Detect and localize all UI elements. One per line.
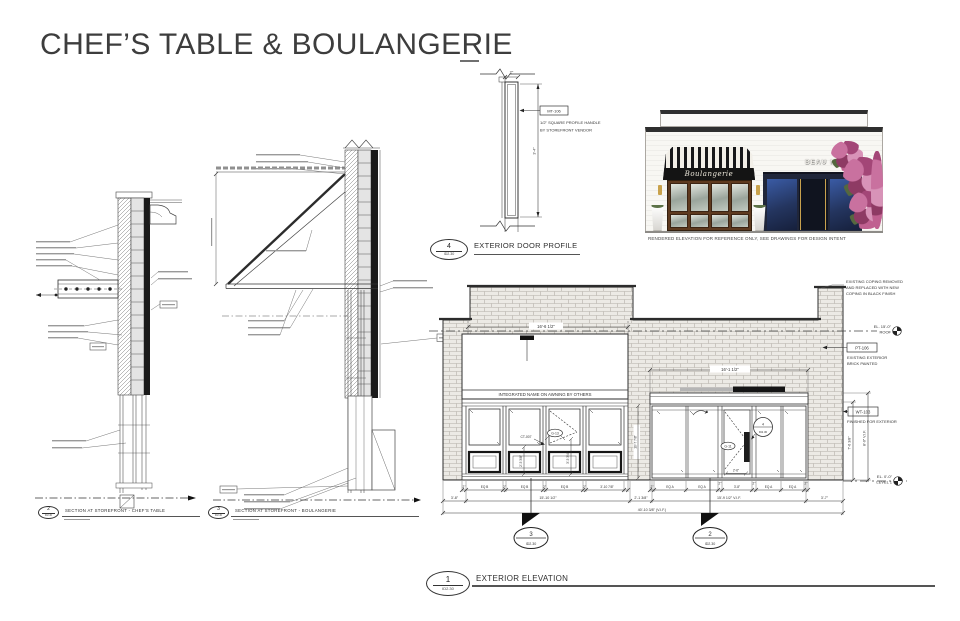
detail-number: 3: [212, 507, 226, 514]
note-line: BRICK PAINTED: [847, 361, 877, 366]
cut-ref-sheet: ID2.30: [526, 542, 537, 546]
dim-label: EQ A: [765, 485, 773, 489]
render-glass-left: [767, 179, 797, 230]
tag-label: MT-106: [547, 109, 561, 114]
dim-label: EQ B: [561, 485, 569, 489]
dim-label: 16'-1 1/2": [721, 367, 739, 372]
render-dark-door: [799, 179, 828, 230]
glass-tag: G-11: [724, 445, 731, 449]
bottom-dimension-strings: 2" EQ B 2" EQ B 2" EQ B 2" 3'-10 7/8" 2"…: [441, 481, 845, 515]
wt-tag: WT-103 FINISHED FOR EXTERIOR: [843, 407, 897, 424]
dim-label: 2": [753, 482, 756, 486]
dim-label: 15'-9 1/2" V.I.F.: [717, 496, 741, 500]
dim-label: 2": [805, 482, 808, 486]
cornice-profile: [150, 200, 182, 224]
dim-label: 16'-6 1/2": [537, 324, 555, 329]
scale-text-stub: [233, 519, 259, 520]
dim-label: EQ B: [481, 485, 489, 489]
detail-ref-number: 4: [762, 423, 764, 427]
detail-sheet: ID2.30: [215, 514, 222, 517]
dim-label: 2": [651, 485, 654, 489]
detail-ref-sheet: ID2.30: [759, 430, 768, 434]
drawing-title-label: EXTERIOR ELEVATION: [476, 574, 568, 583]
annotation-leaders: [36, 225, 192, 448]
door-edge-profile: [499, 77, 518, 232]
wall-assembly: [343, 140, 380, 398]
steel-beam: [36, 280, 122, 298]
wall-assembly: [116, 192, 152, 395]
level1-line: EL. 0'-0" LEVEL 1: [843, 474, 907, 485]
note-line: AND REPLACED WITH NEW: [846, 285, 899, 290]
awning-left-storefront: 16'-6 1/2" INTEGRATED NAME ON AWNING BY …: [462, 321, 630, 477]
exterior-elevation-title: 1 ID2.30 EXTERIOR ELEVATION: [426, 571, 568, 596]
dim-label: 2": [543, 485, 546, 489]
detail-number: 1: [433, 576, 463, 586]
awning-valance: Boulangerie: [663, 168, 755, 180]
page-title: CHEF’S TABLE & BOULANGERIE: [40, 28, 513, 62]
door-profile-title: 4 ID2.30 EXTERIOR DOOR PROFILE: [430, 239, 577, 260]
right-vertical-dimensions: 7'-6 3/8" 8'-0" V.I.F.: [843, 391, 871, 482]
render-caption: RENDERED ELEVATION FOR REFERENCE ONLY, S…: [648, 236, 846, 241]
roof-elevation-value: EL. 15'-0": [874, 324, 892, 329]
handle-note-1: 1/2" SQUARE PROFILE HANDLE: [540, 120, 601, 125]
section-boulangerie-drawing: [208, 138, 453, 523]
detail-bubble: 2 ID2.30: [38, 506, 59, 519]
dim-label: 3'-8": [451, 496, 459, 500]
dim-label: EQ B: [521, 485, 529, 489]
dim-label: 2'-6": [733, 469, 739, 473]
dim-label: 3'-10 7/8": [600, 485, 613, 489]
wall-sconce: [756, 185, 760, 195]
storefront-below: [116, 395, 152, 508]
dim-label: 40'-10 3/8" (V.I.F.): [638, 508, 666, 512]
door-gold-trim: [800, 179, 801, 230]
level1-elevation-label: LEVEL 1: [876, 480, 892, 485]
glass-tag: G-13: [551, 432, 559, 436]
drawing-title-label: SECTION AT STOREFRONT - BOULANGERIE: [235, 508, 336, 513]
wood-door: [670, 183, 688, 228]
dim-label: EQ A: [698, 485, 706, 489]
dim-label: EQ A: [789, 485, 797, 489]
note-line: COPING IN BLACK FINISH: [846, 291, 895, 296]
rendered-elevation: BEAU MONDE Boulangerie: [645, 95, 883, 237]
tag-label: WT-103: [856, 410, 871, 415]
bougainvillea: [871, 151, 883, 229]
dim-label: 10'-7 7/8": [634, 435, 638, 448]
note-line: EXISTING COPING REMOVED: [846, 279, 903, 284]
detail-number: 2: [42, 507, 56, 514]
detail-number: 4: [436, 243, 462, 252]
handle-tag: MT-106 1/2" SQUARE PROFILE HANDLE BY STO…: [520, 106, 601, 133]
dim-label: 7'-6 3/8": [848, 436, 852, 450]
note-line: EXISTING EXTERIOR: [847, 355, 887, 360]
dim-label: 3'-5 3/4": [566, 452, 570, 464]
dim-label: 3'-4": [533, 147, 537, 155]
cut-ref-sheet: ID2.30: [705, 542, 716, 546]
drawing-title-label: SECTION AT STOREFRONT - CHEF'S TABLE: [65, 508, 165, 513]
level1-elevation-value: EL. 0'-0": [877, 474, 893, 479]
annotation-leaders: [220, 154, 455, 509]
dim-label: 2": [503, 485, 506, 489]
detail-sheet: ID2.30: [442, 586, 454, 591]
tag-label: PT-106: [855, 346, 869, 351]
drawing-title-label: EXTERIOR DOOR PROFILE: [474, 241, 577, 250]
render-striped-awning: Boulangerie: [663, 147, 755, 180]
handle-note-2: BY STOREFRONT VENDOR: [540, 128, 592, 133]
scale-text-stub: [64, 519, 90, 520]
dim-label: 2": [719, 482, 722, 486]
boulangerie-script-sign: Boulangerie: [685, 170, 734, 178]
detail-bubble: 3 ID2.30: [208, 506, 229, 519]
detail-bubble: 4 ID2.30: [430, 239, 468, 260]
wood-door: [731, 183, 749, 228]
roof-elevation-label: ROOF: [879, 330, 891, 335]
detail-sheet: ID2.30: [444, 252, 455, 257]
detail-bubble: 1 ID2.30: [426, 571, 470, 596]
dim-label: 8'-0" V.I.F.: [863, 430, 867, 446]
dim-label: 3'-8": [734, 485, 740, 489]
dim-label: 2": [583, 485, 586, 489]
awning-note: INTEGRATED NAME ON AWNING BY OTHERS: [498, 392, 591, 397]
section-boulangerie-title: 3 ID2.30 SECTION AT STOREFRONT - BOULANG…: [208, 506, 336, 519]
wood-door: [711, 183, 729, 228]
dim-label: 2": [463, 485, 466, 489]
section-chefs-title: 2 ID2.30 SECTION AT STOREFRONT - CHEF'S …: [38, 506, 165, 519]
note-line: FINISHED FOR EXTERIOR: [847, 419, 897, 424]
section-chefs-table-drawing: [30, 185, 205, 520]
render-ground-line: [645, 231, 883, 233]
wall-sconce: [658, 185, 662, 195]
render-upper-parapet: [660, 110, 868, 127]
door-profile-drawing: 2" 3'-4" MT-106 1/2" SQUARE PROFILE HAND…: [450, 60, 590, 250]
dim-label: 15'-10 1/2": [539, 496, 557, 500]
render-wood-storefront: [667, 180, 752, 231]
height-dimension: 3'-4": [520, 84, 542, 217]
detail-sheet: ID2.30: [45, 514, 52, 517]
ground-line: [35, 496, 196, 501]
ct-tag: CT-007: [520, 435, 531, 439]
dim-label: EQ A: [666, 485, 674, 489]
dim-label: 3'-7": [821, 496, 829, 500]
wood-door: [690, 183, 708, 228]
door-gold-trim: [825, 179, 826, 230]
drawing-sheet: CHEF’S TABLE & BOULANGERIE: [0, 0, 960, 621]
dim-label: 2'-1 3/8": [634, 496, 648, 500]
exterior-elevation-drawing: EL. 15'-0" ROOF EXISTING COPING REMOVED …: [425, 275, 960, 575]
dim-label: 2": [510, 70, 514, 75]
dim-label: 2'-5 3/8": [519, 455, 523, 467]
